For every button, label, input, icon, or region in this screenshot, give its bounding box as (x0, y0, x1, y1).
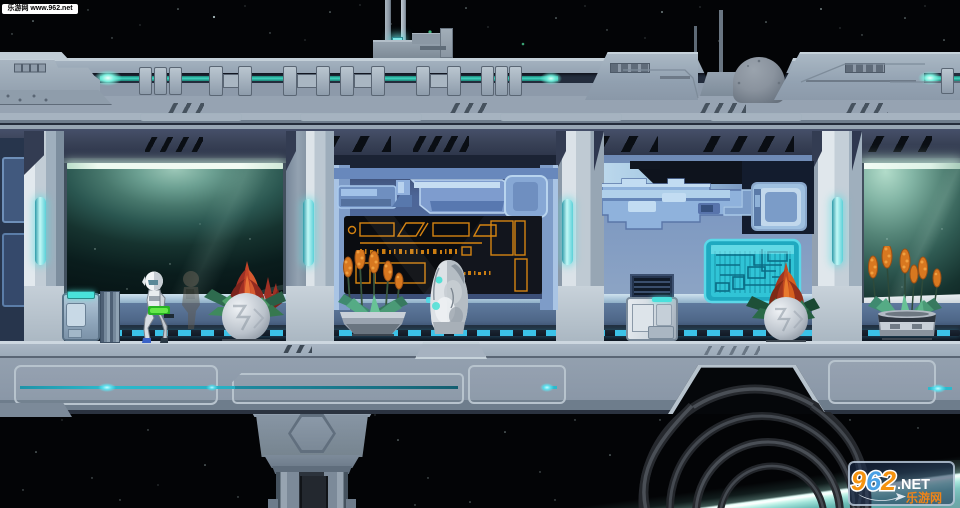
svg-text:6: 6 (866, 466, 882, 496)
svg-text:9: 9 (851, 466, 866, 496)
svg-text:乐游网: 乐游网 (906, 490, 942, 504)
svg-text:2: 2 (880, 466, 896, 496)
